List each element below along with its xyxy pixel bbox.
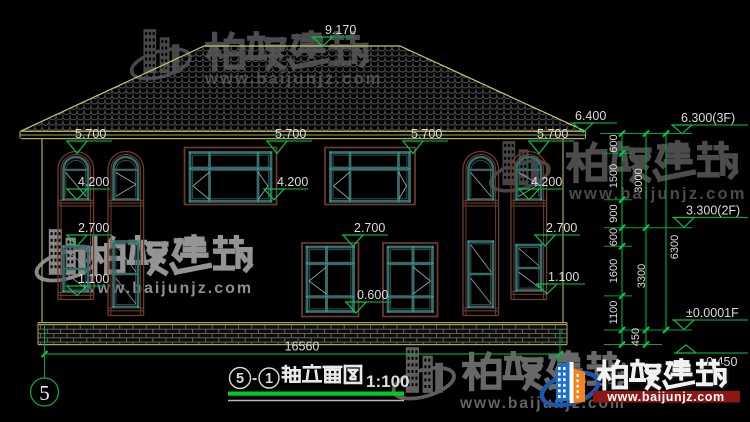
svg-text:2.700: 2.700: [78, 221, 109, 235]
svg-text:450: 450: [630, 328, 642, 346]
svg-text:www.baijunjz.com: www.baijunjz.com: [606, 390, 724, 404]
svg-text:www.baijunjz.com: www.baijunjz.com: [568, 185, 747, 203]
svg-text:1500: 1500: [608, 164, 620, 188]
svg-text:5.700: 5.700: [75, 127, 106, 141]
svg-text:5.700: 5.700: [411, 127, 442, 141]
svg-text:6.300(3F): 6.300(3F): [681, 111, 735, 125]
svg-text:1600: 1600: [608, 259, 620, 283]
svg-text:4.200: 4.200: [78, 175, 109, 189]
svg-text:6300: 6300: [669, 235, 681, 259]
svg-text:-: -: [252, 370, 257, 387]
svg-text:1.100: 1.100: [548, 270, 579, 284]
svg-text:600: 600: [608, 134, 620, 152]
svg-text:2.700: 2.700: [546, 221, 577, 235]
svg-text:6.400: 6.400: [575, 109, 606, 123]
svg-text:1:100: 1:100: [366, 372, 409, 391]
svg-text:±0.0001F: ±0.0001F: [686, 306, 739, 320]
svg-text:4.200: 4.200: [277, 175, 308, 189]
svg-text:4.200: 4.200: [531, 175, 562, 189]
svg-text:0.600: 0.600: [357, 288, 388, 302]
svg-text:5.700: 5.700: [275, 127, 306, 141]
svg-text:1100: 1100: [608, 301, 620, 325]
svg-text:1.100: 1.100: [78, 272, 109, 286]
svg-text:9.170: 9.170: [325, 23, 356, 37]
svg-text:3000: 3000: [633, 168, 645, 192]
svg-text:1: 1: [265, 371, 273, 387]
svg-text:5: 5: [39, 381, 50, 405]
svg-text:5: 5: [236, 371, 244, 387]
svg-text:3.300(2F): 3.300(2F): [686, 204, 740, 218]
svg-text:600: 600: [608, 228, 620, 246]
svg-text:5.700: 5.700: [537, 127, 568, 141]
svg-text:900: 900: [608, 204, 620, 222]
svg-text:3300: 3300: [636, 264, 648, 288]
svg-text:16560: 16560: [285, 340, 320, 354]
svg-text:2.700: 2.700: [354, 221, 385, 235]
